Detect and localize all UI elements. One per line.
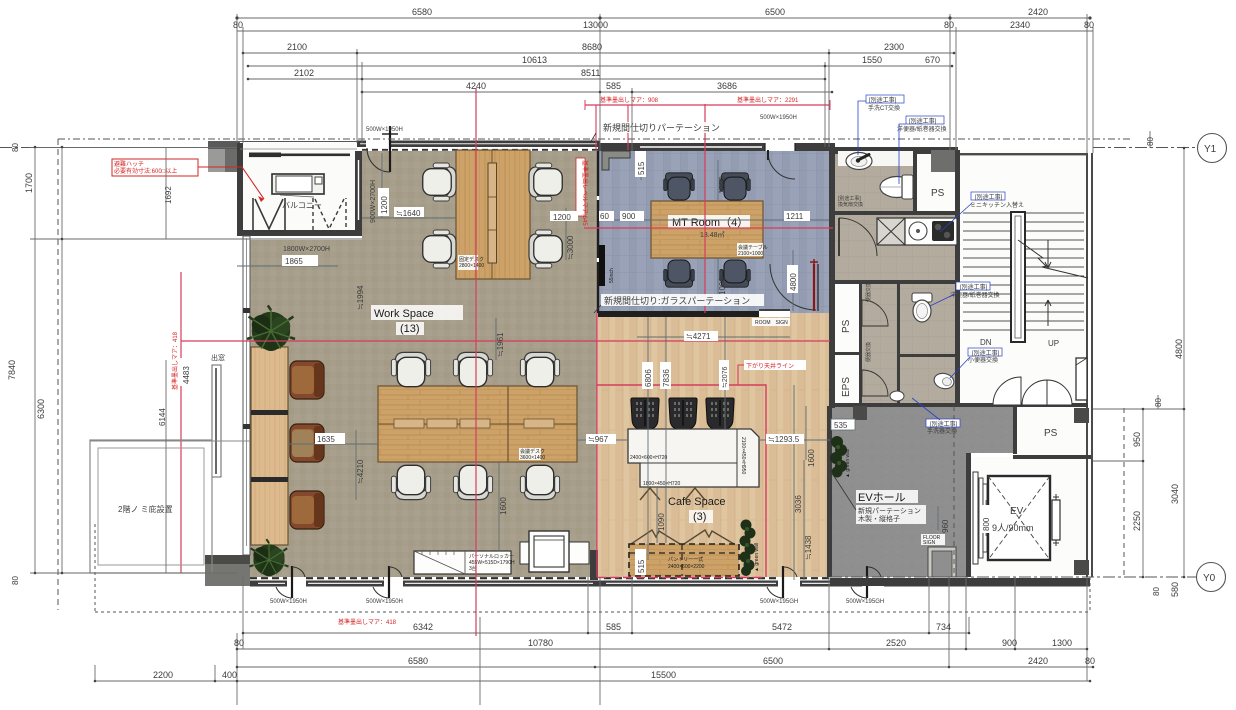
svg-text:2300: 2300 [884, 42, 904, 52]
svg-text:1000: 1000 [718, 277, 727, 295]
svg-text:515: 515 [637, 559, 646, 573]
svg-text:2800×1400: 2800×1400 [459, 263, 484, 269]
svg-text:3036: 3036 [794, 495, 803, 513]
svg-text:2520: 2520 [886, 638, 906, 648]
svg-text:6580: 6580 [412, 7, 432, 17]
svg-text:[別途工事]: [別途工事] [909, 117, 937, 125]
svg-text:500W×1950H: 500W×1950H [366, 599, 403, 605]
svg-text:80: 80 [11, 576, 20, 585]
svg-text:UP: UP [1048, 339, 1059, 348]
svg-text:6342: 6342 [413, 622, 433, 632]
svg-text:パントリー一式: パントリー一式 [668, 556, 703, 563]
svg-text:便器交換: 便器交換 [865, 342, 872, 362]
svg-text:80: 80 [234, 638, 244, 648]
svg-text:2102: 2102 [294, 68, 314, 78]
svg-text:500W×195GH: 500W×195GH [846, 599, 884, 605]
svg-text:500W×195GH: 500W×195GH [760, 599, 798, 605]
svg-text:PS: PS [841, 319, 852, 333]
svg-text:Y0: Y0 [1203, 573, 1216, 584]
svg-text:1600: 1600 [499, 497, 508, 515]
svg-text:8511: 8511 [581, 68, 600, 78]
svg-text:[別途工事]: [別途工事] [930, 420, 958, 428]
svg-text:80: 80 [233, 20, 243, 30]
svg-text:2400×600×2200: 2400×600×2200 [668, 564, 705, 570]
svg-text:2階ノ ミ庇設置: 2階ノ ミ庇設置 [118, 504, 173, 514]
svg-text:≒4271: ≒4271 [686, 332, 711, 341]
svg-text:580: 580 [1170, 582, 1180, 597]
svg-text:3600×1400: 3600×1400 [520, 455, 545, 461]
svg-text:1300: 1300 [1052, 638, 1072, 648]
svg-text:500W×1950H: 500W×1950H [270, 599, 307, 605]
svg-text:2340: 2340 [1010, 20, 1030, 30]
svg-text:換気扇交換: 換気扇交換 [838, 201, 863, 208]
svg-text:新規間仕切りパーテーション: 新規間仕切りパーテーション [603, 122, 720, 133]
svg-text:ROOM SIGN: ROOM SIGN [755, 320, 788, 326]
svg-text:10613: 10613 [522, 55, 547, 65]
svg-text:400: 400 [222, 670, 237, 680]
svg-text:(3): (3) [693, 511, 706, 523]
svg-text:出窓: 出窓 [211, 353, 225, 362]
svg-text:8680: 8680 [582, 42, 602, 52]
svg-text:≒1961: ≒1961 [496, 332, 505, 357]
svg-text:900W×2700H: 900W×2700H [370, 180, 377, 223]
svg-text:1800W×2700H: 1800W×2700H [283, 246, 330, 253]
svg-text:[別途工事]: [別途工事] [838, 195, 861, 202]
svg-text:Cafe Space: Cafe Space [668, 496, 725, 508]
svg-text:950: 950 [1132, 432, 1142, 447]
svg-text:1800×450×H720: 1800×450×H720 [643, 481, 680, 487]
svg-text:80: 80 [1085, 656, 1095, 666]
svg-text:4800: 4800 [789, 273, 798, 291]
svg-text:80: 80 [1154, 398, 1163, 407]
svg-text:2100: 2100 [287, 42, 307, 52]
svg-text:5472: 5472 [772, 622, 792, 632]
svg-text:≒967: ≒967 [588, 435, 609, 444]
svg-text:80: 80 [944, 20, 954, 30]
svg-text:80: 80 [11, 143, 20, 152]
svg-text:下がり天井ライン: 下がり天井ライン [746, 362, 794, 370]
svg-text:2420: 2420 [1028, 7, 1048, 17]
svg-text:≒2076: ≒2076 [722, 366, 729, 388]
svg-text:▲ green wall: ▲ green wall [845, 449, 851, 478]
svg-text:15500: 15500 [651, 670, 676, 680]
svg-text:PS: PS [931, 188, 945, 199]
svg-text:4800: 4800 [1174, 339, 1184, 359]
svg-text:DN: DN [980, 338, 992, 347]
svg-text:55inch: 55inch [609, 268, 615, 283]
svg-text:6806: 6806 [644, 369, 653, 387]
svg-text:木製・縦格子: 木製・縦格子 [858, 514, 900, 523]
svg-text:1090: 1090 [657, 513, 666, 531]
svg-text:会議テーブル: 会議テーブル [738, 244, 768, 251]
svg-text:4483: 4483 [182, 366, 191, 384]
svg-text:新規間仕切り:ガラスパーテーション: 新規間仕切り:ガラスパーテーション [604, 295, 750, 306]
svg-text:2100×1000: 2100×1000 [738, 251, 763, 257]
svg-text:EV: EV [1010, 506, 1024, 517]
svg-text:535: 535 [834, 421, 848, 430]
svg-text:[別途工事]: [別途工事] [869, 96, 897, 104]
svg-text:洋便器/紙巻器交換: 洋便器/紙巻器交換 [897, 125, 947, 133]
svg-text:≒4210: ≒4210 [356, 459, 365, 484]
svg-text:PS: PS [1044, 428, 1058, 439]
svg-text:900: 900 [1002, 638, 1017, 648]
svg-text:洋便器/紙巻器交換: 洋便器/紙巻器交換 [950, 291, 1000, 299]
svg-text:1865: 1865 [285, 257, 303, 266]
svg-text:1600: 1600 [807, 449, 816, 467]
svg-text:会議デスク: 会議デスク [520, 448, 545, 455]
svg-text:2200: 2200 [153, 670, 173, 680]
svg-text:固定デスク: 固定デスク [459, 256, 484, 263]
svg-text:Work Space: Work Space [374, 308, 434, 320]
svg-text:1200: 1200 [553, 213, 571, 222]
svg-text:960: 960 [941, 519, 950, 533]
svg-text:ミニキッチン入替え: ミニキッチン入替え [970, 201, 1024, 209]
svg-text:1211: 1211 [786, 212, 804, 221]
svg-text:515: 515 [637, 161, 646, 175]
svg-text:EVホール: EVホール [858, 491, 906, 504]
svg-text:≒1293.5: ≒1293.5 [768, 435, 800, 444]
svg-text:6500: 6500 [763, 656, 783, 666]
svg-text:バルコニー: バルコニー [282, 201, 322, 210]
svg-text:避難ハッチ: 避難ハッチ [114, 160, 144, 168]
svg-text:≒1994: ≒1994 [356, 285, 365, 310]
svg-text:基準墨出しマア：908: 基準墨出しマア：908 [600, 96, 659, 104]
svg-text:1550: 1550 [862, 55, 882, 65]
svg-text:▲ green wall: ▲ green wall [754, 543, 760, 572]
svg-text:基準墨出しマア：418: 基準墨出しマア：418 [338, 618, 397, 626]
svg-text:1000: 1000 [718, 176, 727, 194]
svg-text:1200: 1200 [380, 196, 389, 214]
svg-text:手洗CT交換: 手洗CT交換 [868, 104, 900, 112]
svg-text:10780: 10780 [528, 638, 553, 648]
svg-text:6580: 6580 [408, 656, 428, 666]
svg-text:800: 800 [982, 517, 991, 531]
svg-text:80: 80 [1146, 137, 1155, 146]
svg-text:585: 585 [606, 81, 621, 91]
svg-text:(13): (13) [400, 323, 420, 335]
svg-text:MT Room（4）: MT Room（4） [672, 216, 748, 229]
svg-text:3686: 3686 [717, 81, 737, 91]
svg-text:6500: 6500 [765, 7, 785, 17]
svg-text:便器交換: 便器交換 [865, 282, 872, 302]
svg-text:80: 80 [1084, 20, 1094, 30]
svg-text:[別途工事]: [別途工事] [960, 283, 988, 291]
svg-text:1700: 1700 [24, 173, 34, 193]
svg-text:1692: 1692 [164, 186, 173, 204]
svg-text:80: 80 [1152, 587, 1161, 596]
svg-text:1635: 1635 [317, 435, 335, 444]
svg-text:2250: 2250 [1132, 511, 1142, 531]
svg-text:13000: 13000 [583, 20, 608, 30]
svg-text:4240: 4240 [466, 81, 486, 91]
svg-text:7836: 7836 [662, 369, 671, 387]
svg-text:EPS: EPS [841, 377, 852, 397]
svg-text:2420: 2420 [1028, 656, 1048, 666]
svg-text:60: 60 [600, 212, 609, 221]
svg-text:基準墨出レベルマア:645: 基準墨出レベルマア:645 [581, 160, 589, 226]
svg-text:≒1438: ≒1438 [804, 535, 813, 560]
svg-text:2100×450×H950: 2100×450×H950 [740, 437, 746, 474]
svg-text:9人/90mm: 9人/90mm [992, 523, 1034, 533]
svg-text:900: 900 [622, 212, 636, 221]
svg-text:670: 670 [925, 55, 940, 65]
svg-text:585: 585 [606, 622, 621, 632]
svg-text:3040: 3040 [1170, 484, 1180, 504]
svg-text:6300: 6300 [36, 399, 46, 419]
svg-text:≒1640: ≒1640 [396, 209, 421, 218]
svg-text:500W×1950H: 500W×1950H [366, 127, 403, 133]
svg-text:必要有効寸法:600□以上: 必要有効寸法:600□以上 [114, 167, 177, 175]
svg-text:≒3000: ≒3000 [566, 235, 575, 260]
svg-text:基準墨出しマア：2291: 基準墨出しマア：2291 [737, 96, 799, 104]
svg-text:2400×600×H720: 2400×600×H720 [630, 455, 667, 461]
svg-text:基準墨出しマア：418: 基準墨出しマア：418 [171, 331, 179, 390]
svg-text:SIGN: SIGN [923, 540, 936, 546]
svg-text:手洗器交換: 手洗器交換 [927, 427, 957, 435]
svg-text:500W×1950H: 500W×1950H [760, 115, 797, 121]
svg-text:7840: 7840 [7, 360, 17, 380]
svg-text:13.48㎡: 13.48㎡ [700, 231, 725, 239]
svg-text:734: 734 [936, 622, 951, 632]
svg-text:[別途工事]: [別途工事] [972, 349, 1000, 357]
svg-text:[別途工事]: [別途工事] [975, 193, 1003, 201]
svg-text:Y1: Y1 [1204, 144, 1217, 155]
svg-text:小便器交換: 小便器交換 [968, 356, 998, 364]
svg-text:新規パーテーション: 新規パーテーション [858, 506, 921, 515]
